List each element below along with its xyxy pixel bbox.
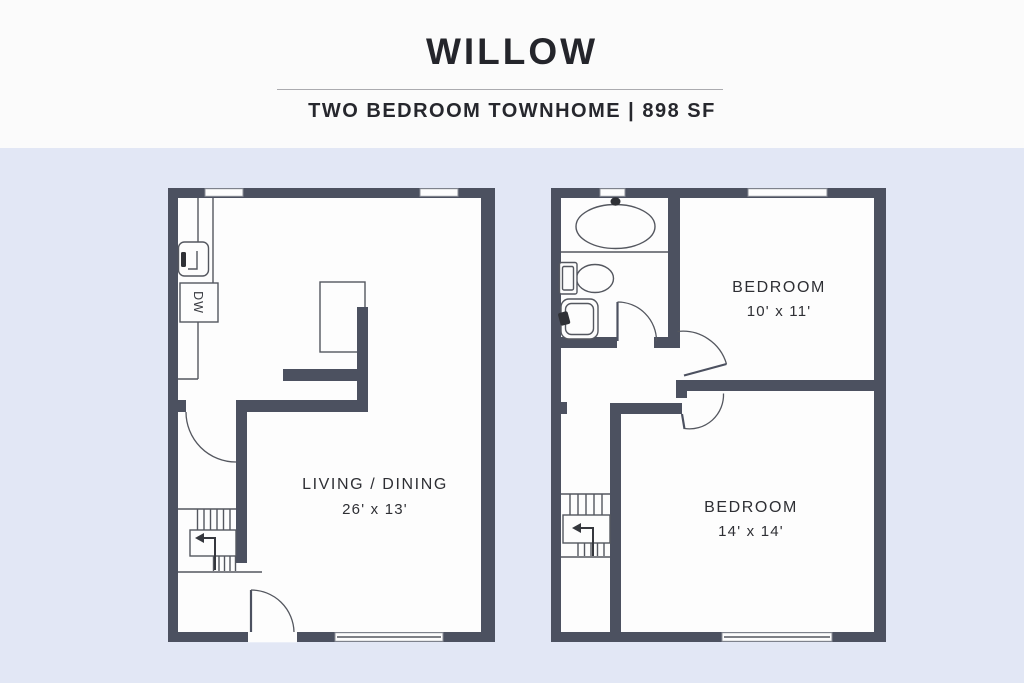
room-dims-bedroom-2: 14' x 14'	[718, 523, 784, 540]
room-label-bedroom-2: BEDROOM	[704, 499, 798, 516]
floorplan-page: WILLOW TWO BEDROOM TOWNHOME | 898 SF	[0, 0, 1024, 683]
header: WILLOW TWO BEDROOM TOWNHOME | 898 SF	[0, 0, 1024, 148]
dishwasher-label: DW	[191, 291, 205, 314]
room-label-living-dining: LIVING / DINING	[302, 476, 448, 493]
room-dims-living-dining: 26' x 13'	[342, 501, 408, 518]
room-label-bedroom-1: BEDROOM	[732, 279, 826, 296]
room-dims-bedroom-1: 10' x 11'	[747, 303, 812, 320]
window-top-right	[420, 189, 458, 197]
kitchen-sink	[179, 242, 209, 276]
window-bathroom	[600, 189, 625, 197]
header-divider	[277, 89, 723, 90]
window-bedroom-1	[748, 189, 827, 197]
second-floor-interior	[551, 188, 886, 642]
dishwasher: DW	[180, 283, 218, 322]
first-floor-interior	[168, 188, 495, 642]
plan-subtitle: TWO BEDROOM TOWNHOME | 898 SF	[0, 100, 1024, 123]
plan-title: WILLOW	[0, 31, 1024, 73]
bathtub-faucet	[611, 197, 621, 205]
second-floor-plan: BEDROOM 10' x 11' BEDROOM 14' x 14'	[548, 185, 893, 645]
bathroom-sink	[558, 299, 598, 339]
toilet	[560, 263, 614, 295]
first-floor-plan: DW LIVING	[165, 185, 498, 645]
window-top-left	[205, 189, 243, 197]
